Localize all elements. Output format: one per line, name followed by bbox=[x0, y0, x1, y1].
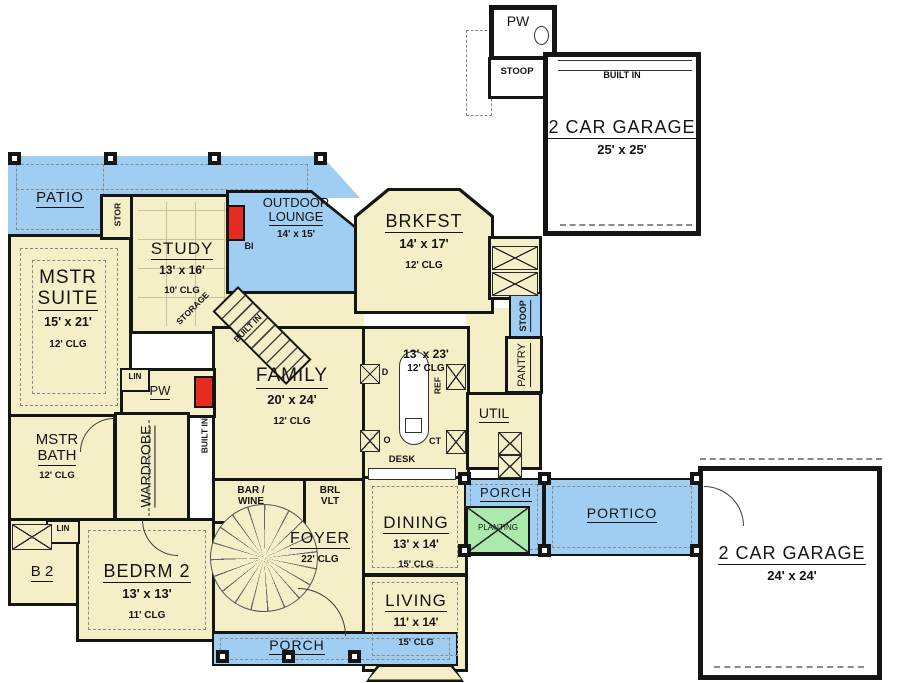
garage-top-label: 2 CAR GARAGE 25' x 25' bbox=[548, 118, 696, 159]
brkfst-label-text: BRKFST bbox=[385, 212, 462, 233]
o-text: O bbox=[383, 435, 390, 445]
util-text: UTIL bbox=[479, 406, 509, 423]
portico-post bbox=[458, 544, 471, 557]
hall-fill-right bbox=[466, 308, 510, 396]
living-dim: 11' x 14' bbox=[393, 615, 438, 629]
bedrm2-label: BEDRM 2 13' x 13' 11' CLG bbox=[84, 562, 210, 622]
built-in-vert-text: BUILT IN bbox=[199, 418, 209, 453]
pantry-label: PANTRY bbox=[517, 330, 531, 400]
living-label: LIVING 11' x 14' 15' CLG bbox=[378, 592, 454, 649]
b2-label-text: B 2 bbox=[31, 564, 54, 582]
brl-line1: BRL bbox=[320, 485, 341, 496]
patio-label: PATIO bbox=[28, 190, 92, 208]
appliance-cooktop bbox=[446, 430, 466, 454]
dining-clg: 15' CLG bbox=[398, 559, 434, 570]
outdoor-lounge-dim: 14' x 15' bbox=[277, 229, 315, 240]
porch-post bbox=[348, 650, 361, 663]
porch-right-label: PORCH bbox=[476, 486, 536, 502]
util-label: UTIL bbox=[470, 406, 518, 423]
garage-right-dim: 24' x 24' bbox=[767, 568, 817, 583]
dishwasher-label: D bbox=[378, 368, 392, 378]
patio-post bbox=[314, 152, 327, 165]
living-bay-floor bbox=[369, 667, 462, 680]
brkfst-clg: 12' CLG bbox=[405, 260, 442, 271]
brl-vlt-label: BRL VLT bbox=[310, 486, 350, 508]
bi-label: BI bbox=[238, 242, 260, 252]
wardrobe-label: WARDROBE bbox=[138, 422, 155, 512]
bedrm2-label-text: BEDRM 2 bbox=[103, 562, 190, 583]
ct-text: CT bbox=[429, 436, 441, 446]
appliance-oven bbox=[360, 430, 380, 452]
d-text: D bbox=[382, 367, 389, 377]
patio-label-text: PATIO bbox=[36, 190, 84, 208]
stoop-top-text: STOOP bbox=[500, 66, 533, 77]
desk-counter bbox=[368, 468, 456, 480]
pantry-text: PANTRY bbox=[517, 343, 531, 387]
garage-right-roof-dashed bbox=[700, 458, 882, 460]
wardrobe-label-text: WARDROBE bbox=[138, 426, 155, 508]
study-label-text: STUDY bbox=[151, 240, 214, 260]
ref-text: REF bbox=[432, 377, 442, 394]
brkfst-label: BRKFST 14' x 17' 12' CLG bbox=[374, 212, 474, 272]
planting-label-text: PLANTING bbox=[478, 523, 518, 532]
mstr-bath-clg: 12' CLG bbox=[39, 470, 75, 481]
bar-wine-label: BAR / WINE bbox=[222, 486, 280, 508]
built-in-vert-label: BUILT IN bbox=[200, 401, 209, 471]
mstr-suite-line2: SUITE bbox=[38, 289, 99, 312]
lin1-label: LIN bbox=[122, 373, 148, 382]
garage-builtin-label: BUILT IN bbox=[588, 71, 656, 81]
dining-label-text: DINING bbox=[383, 514, 449, 534]
outdoor-lounge-line2: LOUNGE bbox=[269, 210, 324, 226]
planting-label: PLANTING bbox=[472, 524, 524, 533]
patio-post bbox=[208, 152, 221, 165]
garage-right-label-text: 2 CAR GARAGE bbox=[718, 544, 865, 565]
lin2-label: LIN bbox=[49, 525, 77, 534]
b2-label: B 2 bbox=[20, 564, 64, 582]
porch-post bbox=[216, 650, 229, 663]
dining-dim: 13' x 14' bbox=[393, 537, 439, 551]
porch-right-label-text: PORCH bbox=[480, 486, 532, 502]
mstr-suite-clg: 12' CLG bbox=[49, 339, 86, 350]
portico-label-text: PORTICO bbox=[587, 506, 658, 523]
appliance-dishwasher bbox=[360, 364, 380, 384]
island-sink bbox=[405, 418, 422, 433]
portico-post bbox=[458, 472, 471, 485]
family-clg: 12' CLG bbox=[273, 416, 310, 427]
porch-bottom-label: PORCH bbox=[260, 638, 334, 655]
garage-top-door-dashed bbox=[560, 224, 692, 226]
family-dim: 20' x 24' bbox=[267, 392, 317, 407]
mud-closet bbox=[492, 272, 538, 296]
floor-plan: PATIO OUTDOOR LOUNGE 14' x 15' STUDY 13'… bbox=[0, 0, 900, 683]
garage-top-label-text: 2 CAR GARAGE bbox=[548, 118, 695, 139]
room-stoop-top bbox=[488, 57, 546, 99]
family-label: FAMILY 20' x 24' 12' CLG bbox=[246, 366, 338, 430]
mstr-bath-line2: BATH bbox=[38, 448, 77, 466]
ref-label: REF bbox=[433, 358, 442, 414]
foyer-label-text: FOYER bbox=[290, 530, 350, 549]
garage-right-door-dashed bbox=[714, 666, 864, 668]
garage-right-label: 2 CAR GARAGE 24' x 24' bbox=[712, 544, 872, 585]
util-cabinet bbox=[498, 432, 522, 455]
portico-label: PORTICO bbox=[584, 506, 660, 523]
foyer-label: FOYER 22' CLG bbox=[282, 530, 358, 567]
portico-post bbox=[690, 544, 703, 557]
stoop-right-text: STOOP bbox=[519, 300, 531, 331]
patio-post bbox=[104, 152, 117, 165]
bedrm2-dim: 13' x 13' bbox=[122, 586, 172, 601]
patio-post bbox=[8, 152, 21, 165]
bar-wine-line1: BAR / bbox=[237, 485, 264, 496]
pw-inner-text: PW bbox=[150, 384, 171, 400]
brl-line2: VLT bbox=[321, 496, 339, 507]
bedrm2-clg: 11' CLG bbox=[129, 610, 166, 621]
lin1-text: LIN bbox=[129, 372, 142, 381]
kitchen-label: 13' x 23' 12' CLG bbox=[392, 348, 460, 375]
util-cabinet bbox=[498, 455, 522, 478]
b2-closet bbox=[12, 524, 52, 550]
desk-label: DESK bbox=[380, 455, 424, 465]
living-bay-window bbox=[366, 664, 464, 682]
bi-text: BI bbox=[245, 241, 254, 251]
mstr-bath-label: MSTR BATH 12' CLG bbox=[26, 432, 88, 483]
pw-inner-label: PW bbox=[140, 384, 180, 400]
porch-bottom-label-text: PORCH bbox=[269, 638, 325, 655]
fireplace-icon-lounge bbox=[227, 205, 245, 241]
mstr-suite-dim: 15' x 21' bbox=[44, 315, 92, 329]
outdoor-lounge-line1: OUTDOOR bbox=[263, 195, 329, 210]
portico-post bbox=[538, 544, 551, 557]
portico-post bbox=[538, 472, 551, 485]
study-dim: 13' x 16' bbox=[159, 263, 205, 277]
pw-top-text: PW bbox=[507, 13, 530, 29]
oven-label: O bbox=[380, 436, 394, 446]
lin2-text: LIN bbox=[57, 524, 70, 533]
foyer-clg: 22' CLG bbox=[301, 554, 338, 565]
mstr-suite-label: MSTR SUITE 15' x 21' 12' CLG bbox=[24, 268, 112, 352]
pw-top-label: PW bbox=[498, 14, 538, 29]
mstr-bath-line1: MSTR bbox=[36, 431, 79, 448]
ct-label: CT bbox=[424, 437, 446, 447]
portico-post bbox=[690, 472, 703, 485]
stoop-top-label: STOOP bbox=[490, 67, 544, 77]
mud-closet bbox=[492, 246, 538, 270]
desk-text: DESK bbox=[389, 454, 415, 465]
mstr-suite-line1: MSTR bbox=[39, 267, 97, 288]
outdoor-lounge-label: OUTDOOR LOUNGE 14' x 15' bbox=[248, 196, 344, 241]
brkfst-dim: 14' x 17' bbox=[399, 236, 449, 251]
living-clg: 15' CLG bbox=[398, 637, 434, 648]
living-label-text: LIVING bbox=[385, 592, 447, 612]
bar-wine-line2: WINE bbox=[238, 496, 264, 507]
family-label-text: FAMILY bbox=[256, 366, 328, 389]
study-clg: 10' CLG bbox=[164, 285, 200, 296]
stor-text: STOR bbox=[112, 203, 122, 226]
garage-builtin-text: BUILT IN bbox=[603, 70, 640, 80]
stor-label: STOR bbox=[113, 187, 122, 243]
dining-label: DINING 13' x 14' 15' CLG bbox=[378, 514, 454, 571]
garage-top-dim: 25' x 25' bbox=[597, 142, 647, 157]
